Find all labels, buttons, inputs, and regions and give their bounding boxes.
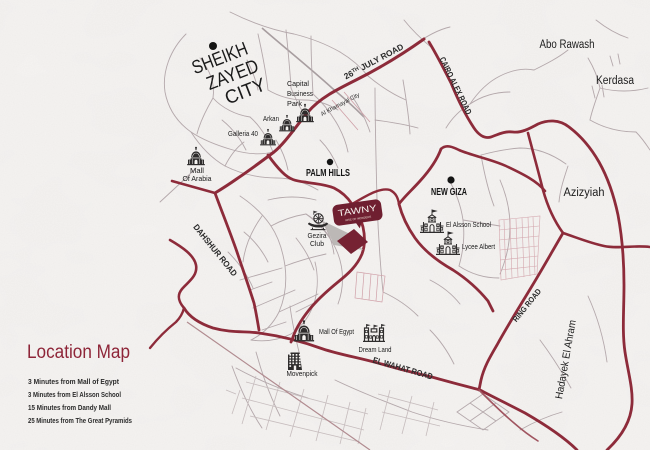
svg-text:3 Minutes from El Alsson Schoo: 3 Minutes from El Alsson School (28, 390, 121, 399)
svg-text:NEW GIZA: NEW GIZA (431, 186, 467, 198)
svg-text:Of Arabia: Of Arabia (183, 174, 213, 183)
svg-text:Club: Club (310, 239, 324, 248)
svg-text:Movenpick: Movenpick (287, 369, 318, 378)
svg-text:Kerdasa: Kerdasa (596, 75, 635, 87)
svg-text:Dream Land: Dream Land (359, 345, 392, 354)
svg-text:Capital: Capital (287, 81, 309, 88)
svg-text:Business: Business (287, 91, 313, 98)
svg-text:Arkan: Arkan (263, 114, 279, 123)
svg-text:Lycee Albert: Lycee Albert (462, 242, 496, 251)
svg-text:15 Minutes from Dandy Mall: 15 Minutes from Dandy Mall (28, 403, 111, 412)
svg-text:PALM HILLS: PALM HILLS (306, 168, 350, 179)
svg-text:Galleria 40: Galleria 40 (228, 129, 258, 138)
svg-text:Abo Rawash: Abo Rawash (540, 39, 595, 51)
svg-text:Azizyiah: Azizyiah (564, 187, 605, 199)
svg-text:3 Minutes from Mall of Egypt: 3 Minutes from Mall of Egypt (28, 377, 119, 386)
svg-text:El Alsson School: El Alsson School (446, 220, 491, 229)
svg-text:25 Minutes from The Great Pyra: 25 Minutes from The Great Pyramids (28, 416, 132, 425)
svg-text:Mall Of Egypt: Mall Of Egypt (319, 327, 355, 336)
svg-text:Park: Park (287, 101, 303, 108)
svg-text:Location Map: Location Map (27, 342, 130, 363)
